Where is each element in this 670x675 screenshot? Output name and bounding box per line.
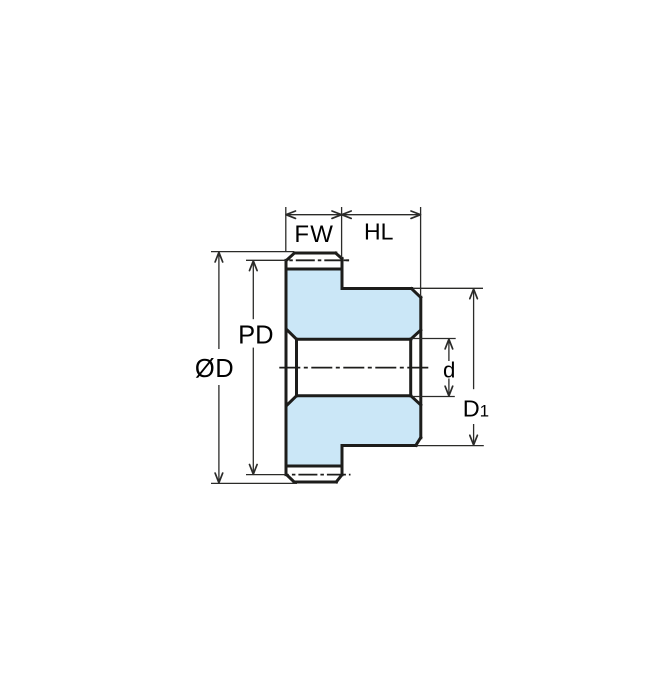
svg-text:PD: PD xyxy=(238,321,273,349)
svg-text:HL: HL xyxy=(364,219,394,245)
svg-text:ØD: ØD xyxy=(195,355,234,383)
svg-text:FW: FW xyxy=(294,221,334,248)
svg-text:1: 1 xyxy=(480,402,489,421)
svg-text:D: D xyxy=(463,396,480,422)
svg-text:d: d xyxy=(443,358,455,383)
